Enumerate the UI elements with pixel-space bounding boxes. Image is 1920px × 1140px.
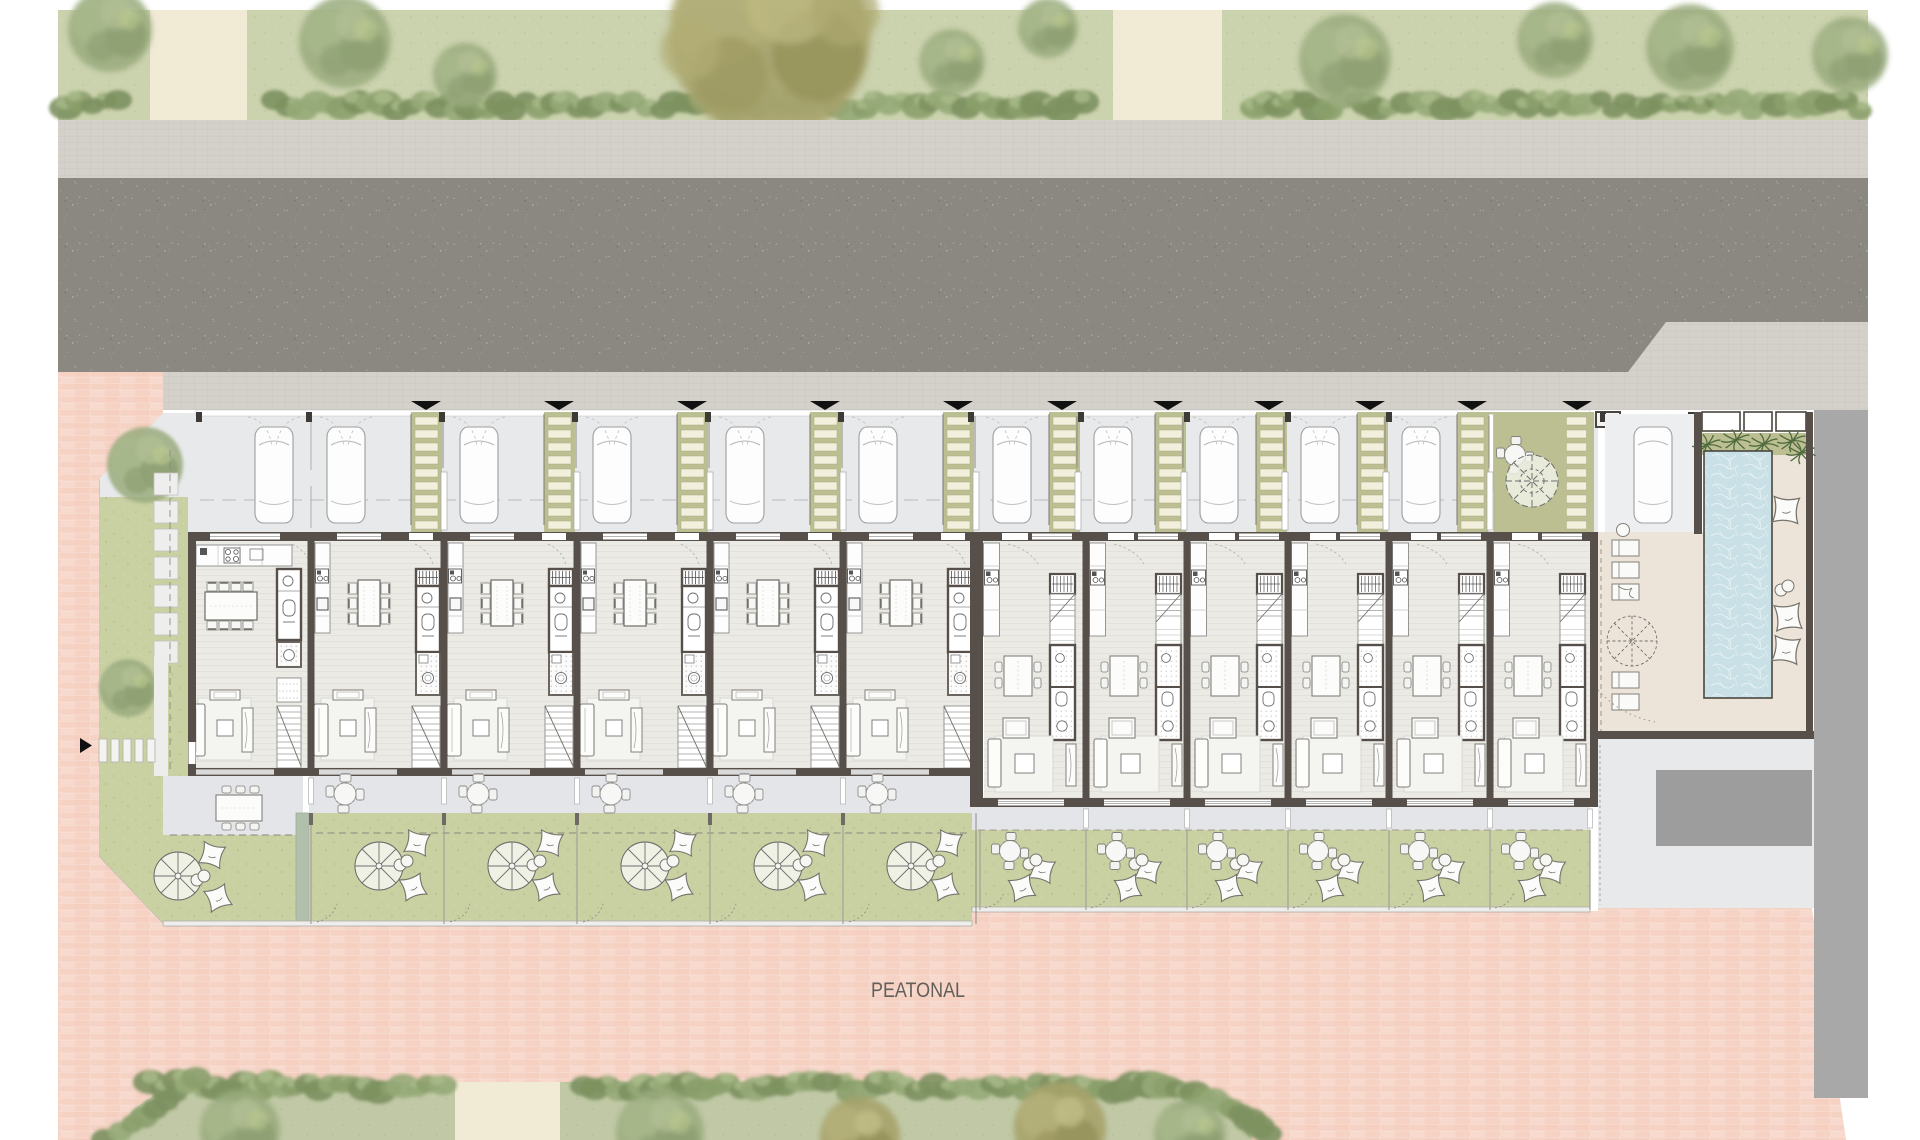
svg-text:PEATONAL: PEATONAL — [871, 978, 965, 1002]
